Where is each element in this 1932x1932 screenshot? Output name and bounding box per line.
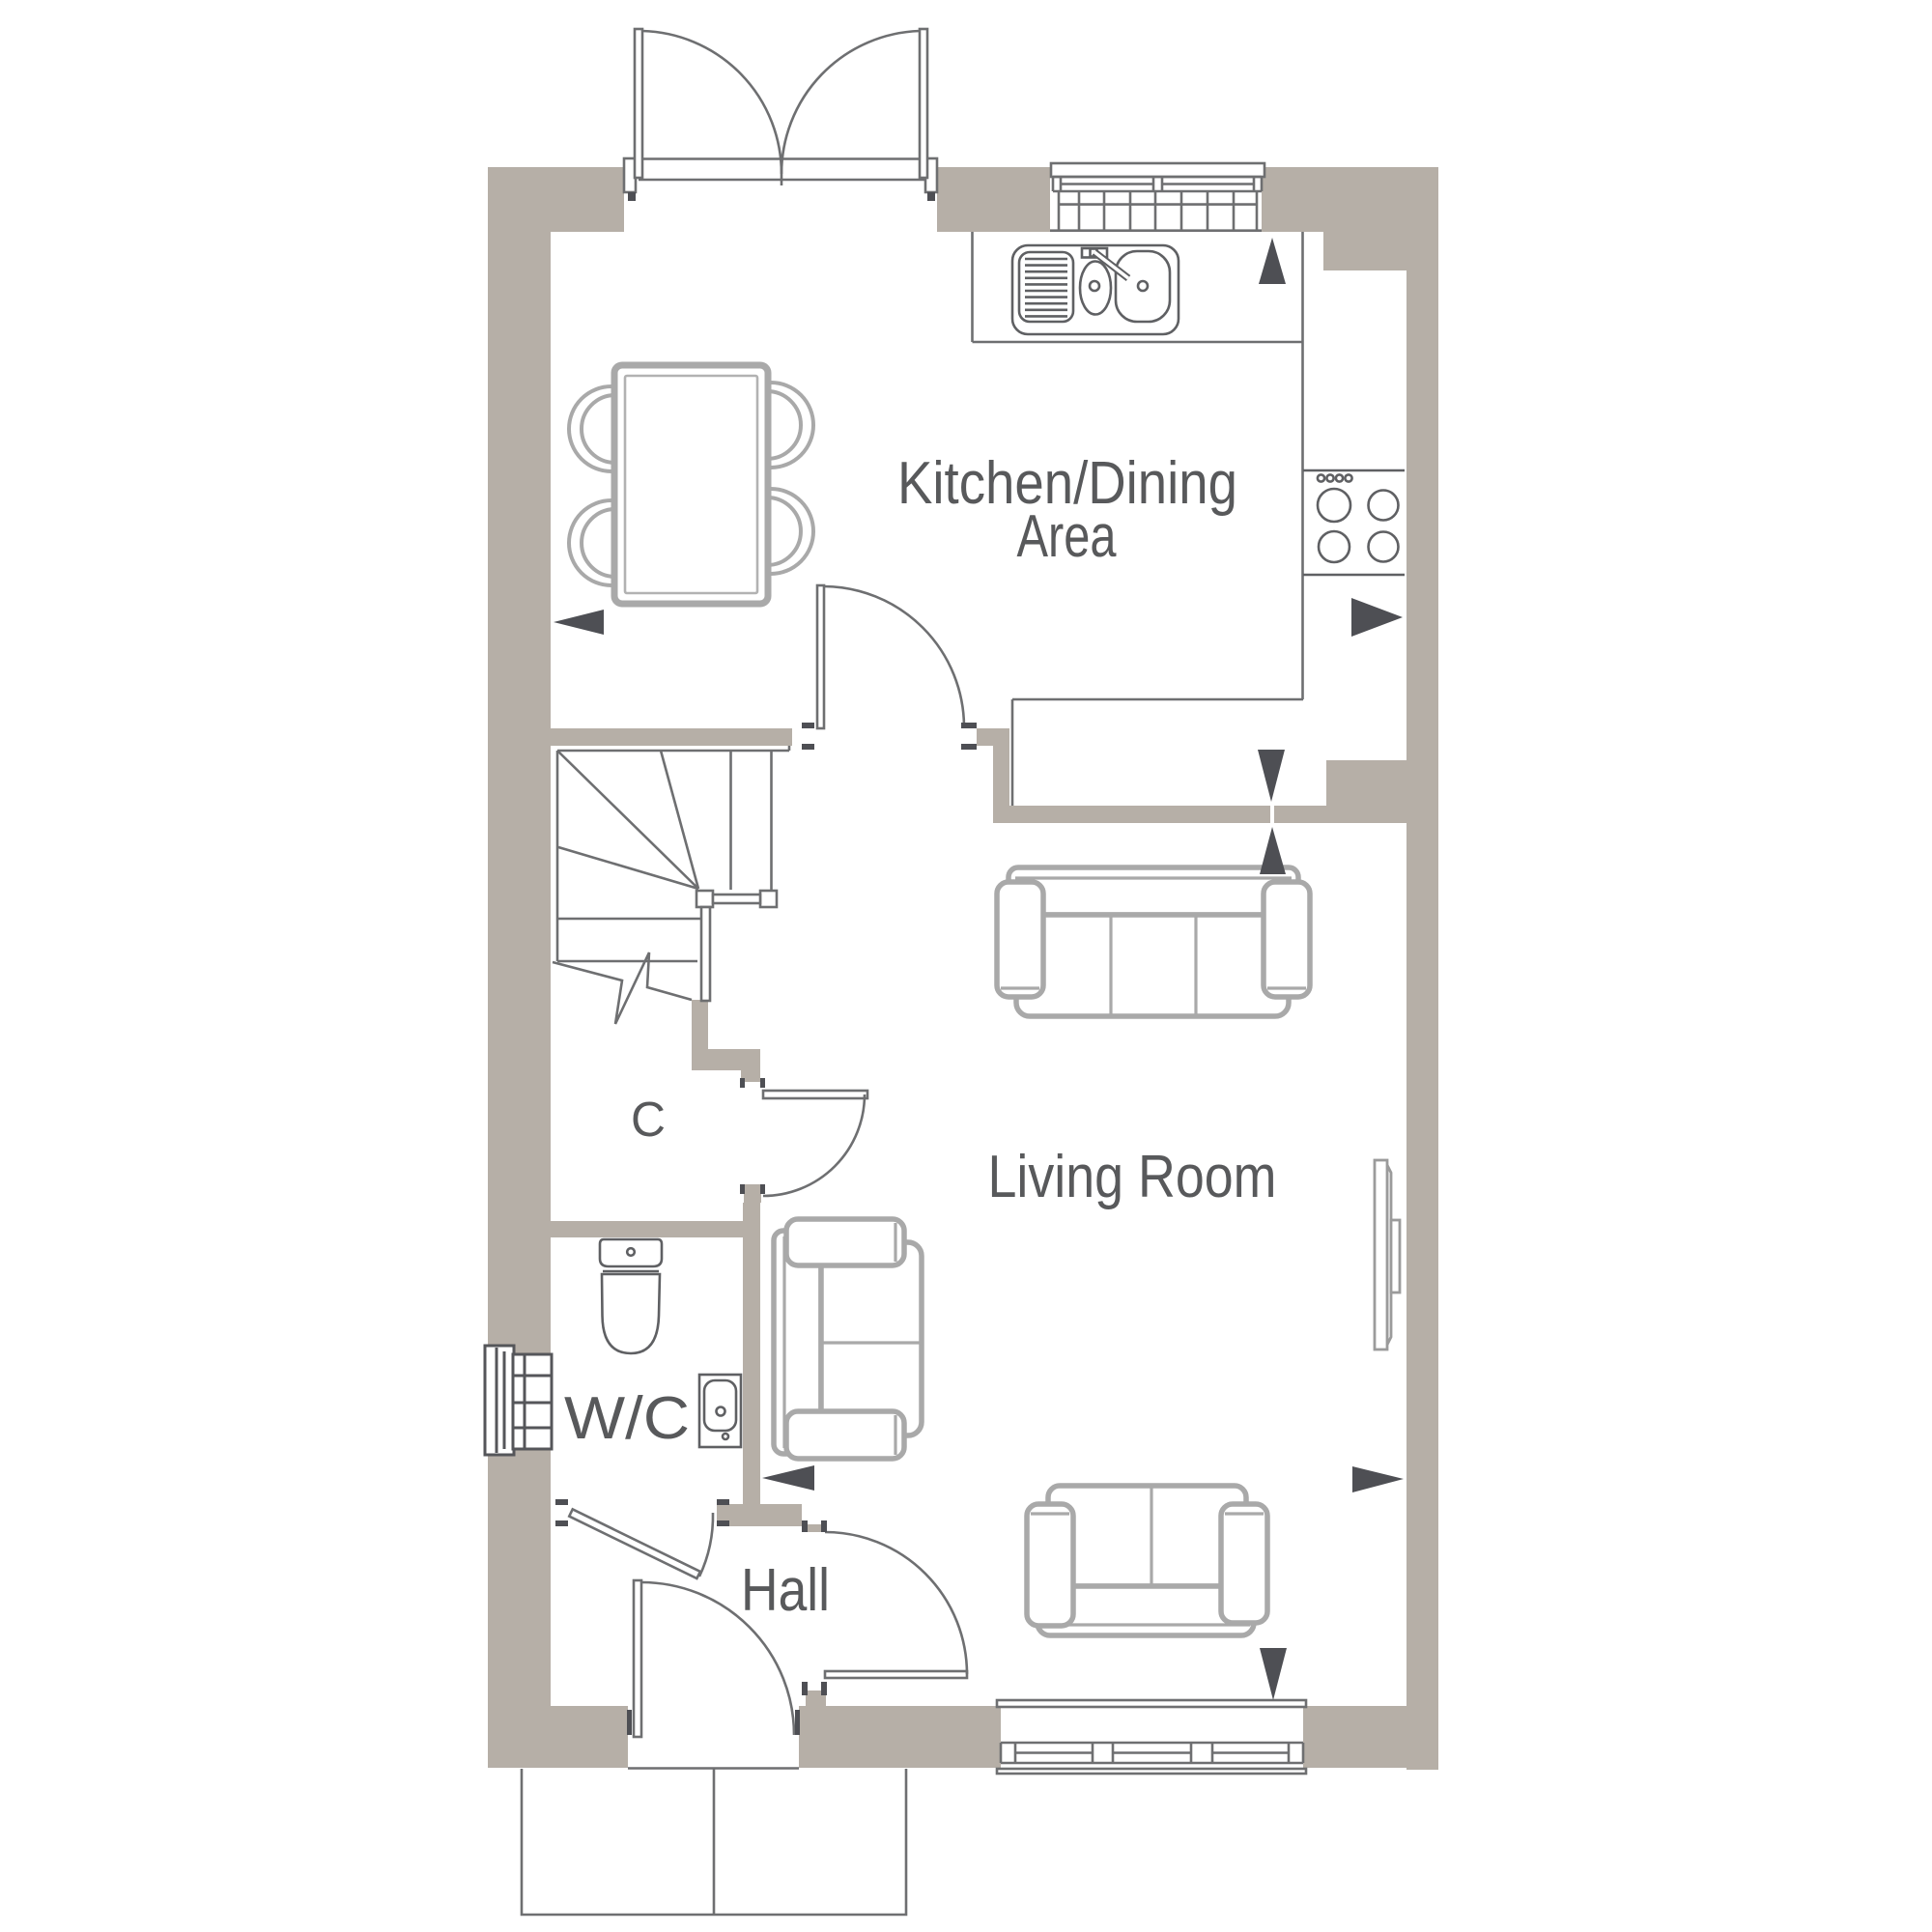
svg-text:C: C [631, 1092, 666, 1147]
svg-text:Living Room: Living Room [988, 1144, 1277, 1210]
svg-text:Hall: Hall [741, 1557, 830, 1624]
svg-text:Area: Area [1017, 503, 1117, 570]
svg-text:W/C: W/C [564, 1385, 690, 1452]
